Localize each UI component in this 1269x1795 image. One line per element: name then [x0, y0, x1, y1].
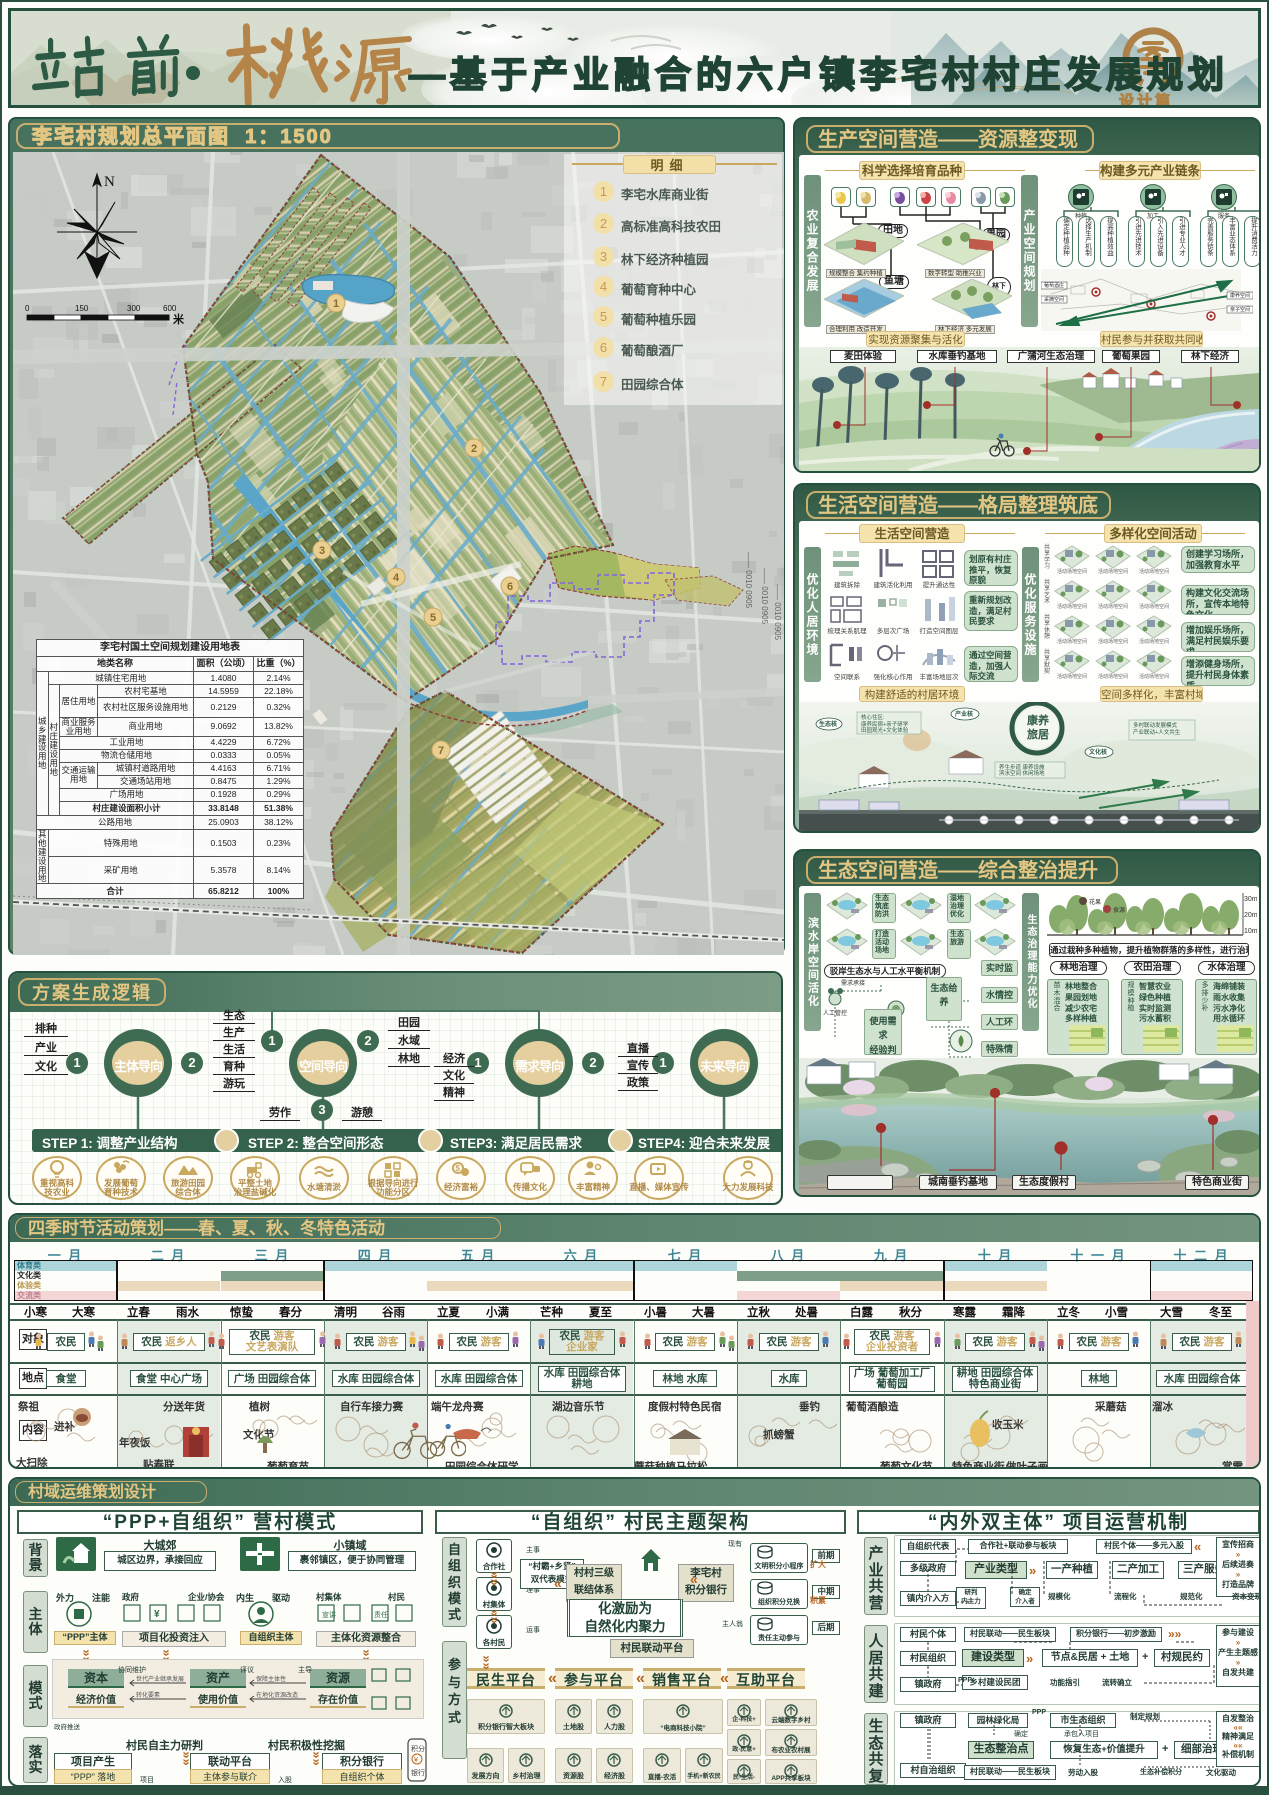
svg-text:文化核: 文化核 — [1088, 748, 1107, 756]
svg-text:保障主体性: 保障主体性 — [256, 1675, 286, 1683]
svg-text:—— 0010 0905: —— 0010 0905 — [760, 568, 769, 625]
svg-text:4: 4 — [393, 572, 400, 584]
svg-text:米: 米 — [172, 312, 185, 326]
svg-text:责任: 责任 — [374, 1610, 388, 1619]
svg-text:旅居: 旅居 — [1027, 727, 1049, 741]
svg-text:20m: 20m — [1244, 912, 1257, 919]
svg-text:康养空间: 康养空间 — [1230, 292, 1250, 299]
svg-text:10m: 10m — [1244, 928, 1257, 935]
svg-text:在地化资源改造: 在地化资源改造 — [256, 1691, 298, 1699]
svg-text:生态核: 生态核 — [819, 720, 837, 728]
svg-text:产业核: 产业核 — [955, 710, 973, 718]
svg-text:康养: 康养 — [1027, 713, 1050, 727]
svg-text:银行: 银行 — [411, 1768, 425, 1777]
svg-text:300: 300 — [127, 304, 141, 313]
svg-text:30m: 30m — [1244, 896, 1257, 903]
svg-text:1: 1 — [333, 298, 339, 310]
svg-text:2: 2 — [471, 443, 477, 455]
svg-text:¥: ¥ — [154, 1609, 160, 1620]
svg-text:—— 0010 0905: —— 0010 0905 — [744, 552, 753, 609]
svg-text:N: N — [104, 174, 115, 190]
svg-text:5: 5 — [430, 612, 436, 624]
svg-text:食源: 食源 — [1113, 906, 1125, 914]
svg-text:核心住区:: 核心住区: — [861, 713, 885, 721]
svg-text:转化要素: 转化要素 — [136, 1691, 160, 1699]
svg-text:养生步道 康养设施: 养生步道 康养设施 — [999, 763, 1045, 771]
svg-text:6: 6 — [507, 581, 513, 593]
svg-text:积分: 积分 — [411, 1744, 425, 1753]
svg-text:$: $ — [456, 1164, 461, 1173]
svg-text:150: 150 — [75, 304, 89, 313]
svg-text:需求承接: 需求承接 — [841, 979, 865, 987]
svg-text:多村联动发展模式: 多村联动发展模式 — [1133, 721, 1178, 729]
svg-text:葡萄酒庄: 葡萄酒庄 — [1044, 282, 1064, 289]
svg-text:0: 0 — [25, 304, 30, 313]
svg-text:人工管控: 人工管控 — [823, 1009, 847, 1017]
svg-text:田园观光+文化体验: 田园观光+文化体验 — [861, 726, 909, 734]
svg-text:花果: 花果 — [1089, 898, 1101, 906]
svg-text:600: 600 — [163, 304, 177, 313]
svg-text:产业联动+人文共生: 产业联动+人文共生 — [1133, 728, 1181, 736]
svg-text:—— 0010 0905: —— 0010 0905 — [773, 584, 782, 641]
svg-text:宣讲: 宣讲 — [322, 1610, 336, 1619]
svg-text:世代产业继承发展: 世代产业继承发展 — [136, 1675, 184, 1683]
svg-text:亲子空间: 亲子空间 — [1230, 306, 1250, 313]
svg-text:滨水空间 休闲场地: 滨水空间 休闲场地 — [999, 769, 1045, 777]
svg-text:康养民宿+亲子研学: 康养民宿+亲子研学 — [861, 720, 909, 728]
svg-text:采摘空间: 采摘空间 — [1044, 296, 1064, 303]
svg-text:¥: ¥ — [414, 1757, 418, 1764]
svg-text:7: 7 — [438, 745, 444, 757]
svg-text:3: 3 — [319, 545, 325, 557]
